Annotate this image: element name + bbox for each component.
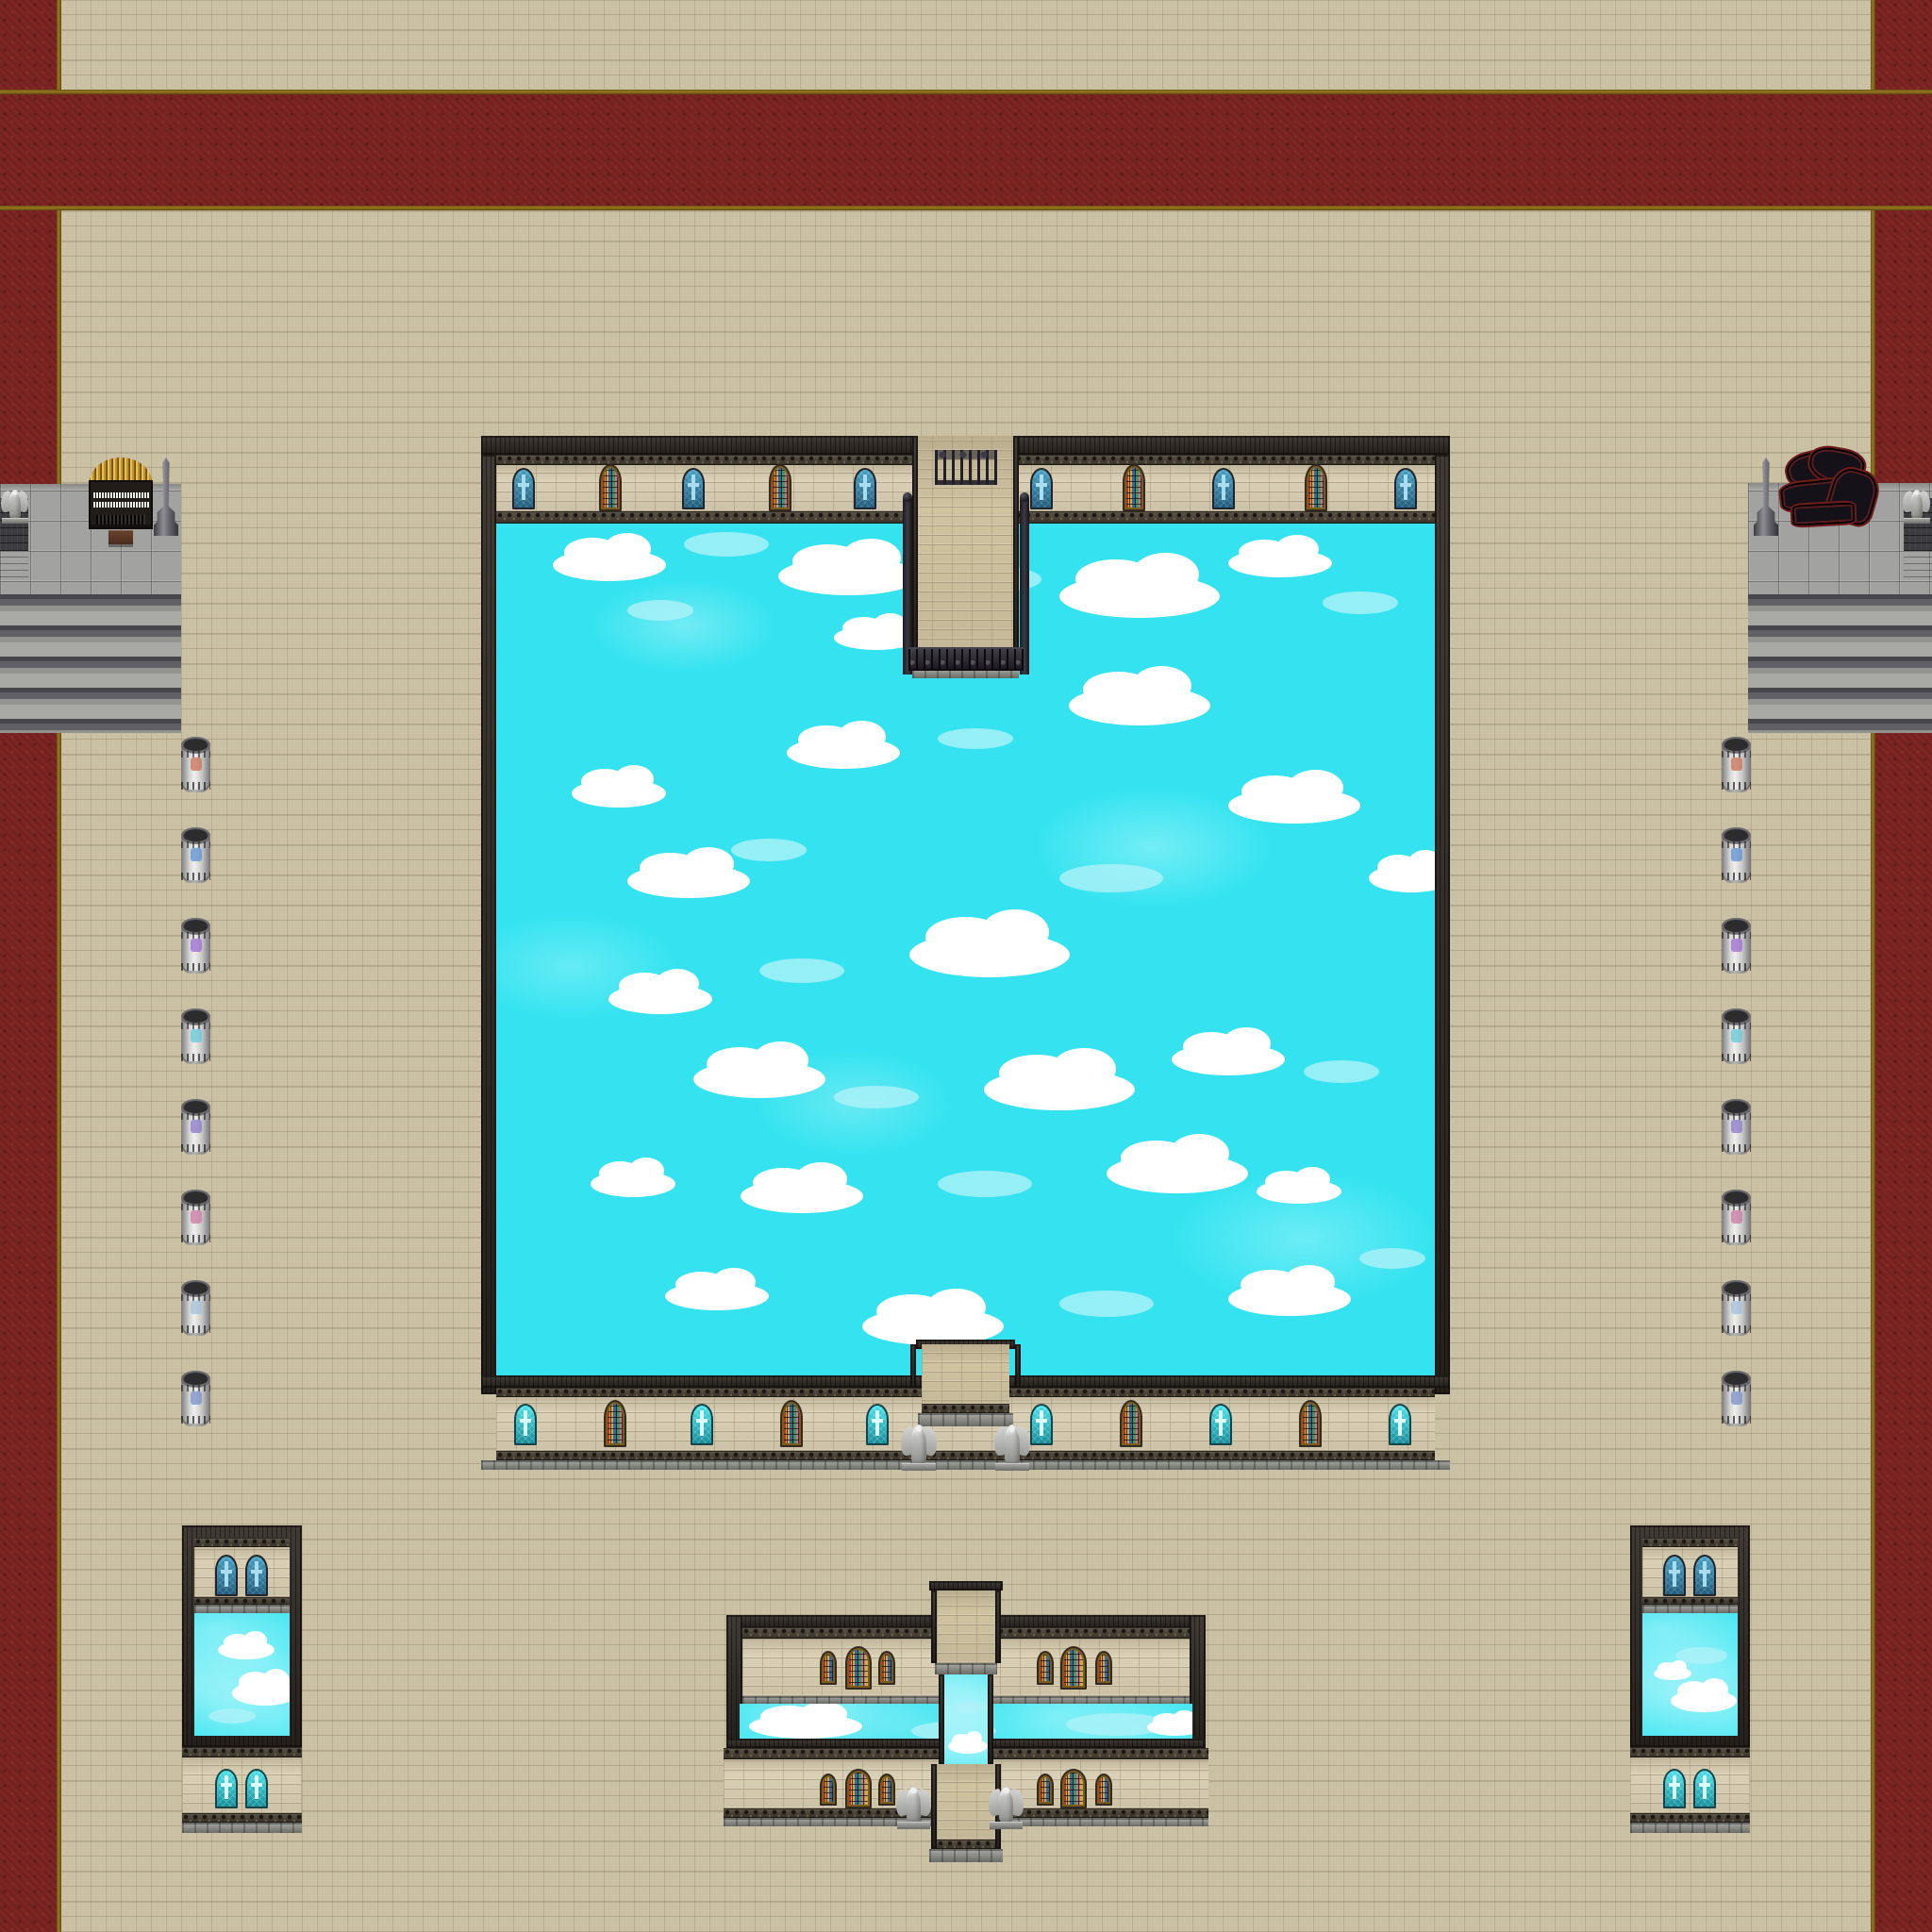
- cloud-puff: [683, 847, 735, 881]
- cloud-puff: [1170, 1134, 1229, 1174]
- cloud-wisp: [1059, 1291, 1154, 1317]
- left-chapel-cornice-top: [194, 1538, 290, 1547]
- left-chapel-cornice-mid: [194, 1597, 290, 1605]
- marble-pillar[interactable]: [181, 1373, 210, 1426]
- stained-glass-window: [1037, 1774, 1054, 1806]
- cloud-puff: [656, 969, 699, 999]
- stained-glass-window: [604, 1400, 626, 1447]
- marble-pillar[interactable]: [181, 1010, 210, 1064]
- left-chapel-south-cornice-lower: [182, 1813, 302, 1823]
- cloud-puff: [604, 533, 651, 565]
- statue-body: [1911, 490, 1923, 518]
- courtyard-south-ledge: [481, 1460, 1450, 1470]
- stained-glass-window: [1060, 1646, 1087, 1690]
- cloud-puff: [926, 1289, 986, 1326]
- angel-statue[interactable]: [996, 1421, 1028, 1470]
- pillar-emblem: [191, 1391, 202, 1405]
- cloud: [948, 1739, 988, 1754]
- left-chapel-south-wall: [182, 1757, 302, 1813]
- pillar-top-opening: [1722, 1190, 1751, 1206]
- cloud-puff: [1288, 770, 1343, 806]
- cyan-cross-window: [245, 1769, 268, 1808]
- pillar-band: [181, 1235, 210, 1242]
- ornamental-iron-gate[interactable]: [935, 450, 997, 485]
- cyan-cross-window: [1209, 1404, 1232, 1445]
- cloud: [665, 1282, 769, 1310]
- cloud-puff: [753, 1041, 808, 1079]
- pillar-emblem: [1731, 1391, 1742, 1405]
- stained-glass-window: [1095, 1774, 1112, 1806]
- pillar-emblem: [1731, 758, 1742, 771]
- blue-cross-window: [682, 468, 705, 509]
- stained-glass-window: [1060, 1769, 1087, 1808]
- cloud-wisp: [627, 600, 693, 621]
- organ-keyboard-upper: [92, 492, 149, 498]
- marble-pillar[interactable]: [181, 739, 210, 792]
- cloud-wisp: [938, 728, 1013, 749]
- pillar-top-opening: [1722, 827, 1751, 843]
- cloud: [1671, 1690, 1737, 1712]
- pillar-top-opening: [1722, 1099, 1751, 1115]
- red-carpet-left-strip: [0, 0, 57, 1932]
- cloud: [1228, 549, 1332, 577]
- pillar-emblem: [191, 1301, 202, 1314]
- statue-pedestal: [902, 1463, 935, 1471]
- pillar-band: [1722, 963, 1751, 971]
- south-notch-walkway: [922, 1344, 1009, 1410]
- angel-statue[interactable]: [991, 1783, 1022, 1828]
- cloud: [909, 932, 1070, 977]
- stained-glass-window: [1095, 1651, 1112, 1685]
- left-chapel-north-wall: [194, 1547, 290, 1597]
- right-chapel-ledge-mid: [1642, 1605, 1738, 1613]
- cloud-puff: [838, 721, 885, 753]
- cloud-puff: [1275, 535, 1319, 563]
- angel-statue[interactable]: [3, 487, 27, 523]
- marble-pillar[interactable]: [1722, 739, 1751, 792]
- pillar-emblem: [191, 758, 202, 771]
- stained-glass-window: [878, 1774, 895, 1806]
- cloud: [984, 1069, 1135, 1110]
- marble-pillar[interactable]: [1722, 1282, 1751, 1336]
- cyan-cross-window: [866, 1404, 889, 1445]
- cloud-puff: [966, 1731, 983, 1746]
- statue-pedestal: [995, 1463, 1028, 1471]
- cloud: [1107, 1154, 1248, 1193]
- pillar-top-opening: [1722, 1280, 1751, 1296]
- marble-pillar[interactable]: [1722, 1101, 1751, 1155]
- cloud-wisp: [953, 1702, 985, 1713]
- south-column-border-right: [995, 1591, 1001, 1663]
- cloud: [749, 1714, 862, 1739]
- cloud-puff: [795, 1162, 847, 1196]
- cloud: [1069, 686, 1210, 725]
- pillar-emblem: [191, 1029, 202, 1042]
- blue-cross-window: [1663, 1555, 1686, 1596]
- stained-glass-window: [769, 464, 791, 511]
- cloud-wisp: [1059, 864, 1163, 892]
- left-chapel-ledge-mid: [194, 1605, 290, 1613]
- pillar-band: [181, 873, 210, 880]
- cloud-wisp: [834, 1086, 919, 1108]
- cloud: [553, 549, 666, 581]
- pillar-top-opening: [181, 1371, 210, 1387]
- statue-body: [9, 490, 21, 518]
- pillar-band: [1722, 1144, 1751, 1152]
- blue-cross-window: [854, 468, 876, 509]
- cloud: [1059, 575, 1220, 618]
- blue-cross-window: [1394, 468, 1417, 509]
- angel-statue[interactable]: [1905, 487, 1929, 523]
- south-chapel-sky-strip: [944, 1674, 988, 1764]
- cloud: [591, 1171, 675, 1197]
- pillar-band: [181, 1054, 210, 1061]
- organ-bench[interactable]: [108, 530, 133, 544]
- cloud-puff: [712, 1268, 756, 1296]
- stained-glass-window: [820, 1774, 837, 1806]
- south-column-upper: [937, 1591, 995, 1663]
- south-column-ledge: [935, 1663, 997, 1674]
- courtyard-frame-right: [1435, 455, 1450, 1394]
- pillar-emblem: [1731, 848, 1742, 861]
- cyan-cross-window: [691, 1404, 713, 1445]
- pillar-top-opening: [181, 1099, 210, 1115]
- statue-pedestal: [2, 518, 27, 524]
- stained-glass-window: [1120, 1400, 1142, 1447]
- right-chapel-south-cornice-lower: [1630, 1813, 1750, 1823]
- marble-pillar[interactable]: [181, 829, 210, 883]
- blue-cross-window: [1030, 468, 1053, 509]
- cloud: [1228, 1282, 1351, 1316]
- cloud-puff: [614, 765, 654, 793]
- courtyard-south-cornice-lower: [496, 1451, 1435, 1460]
- cloud: [232, 1681, 290, 1706]
- cyan-cross-window: [1663, 1769, 1686, 1808]
- right-chapel-south-ledge: [1630, 1823, 1750, 1833]
- south-notch-border-left: [910, 1344, 916, 1388]
- cloud: [778, 558, 920, 595]
- cyan-cross-window: [1030, 1404, 1053, 1445]
- cloud-wisp: [938, 1171, 1032, 1197]
- pillar-top-opening: [1722, 918, 1751, 934]
- walkway-iron-railing: [908, 647, 1024, 671]
- statue-body: [911, 1424, 926, 1463]
- pillar-band: [181, 1416, 210, 1424]
- left-platform-stairs[interactable]: [0, 594, 181, 733]
- stained-glass-window: [845, 1769, 872, 1808]
- cloud-puff: [262, 1669, 290, 1693]
- stained-glass-window: [599, 464, 622, 511]
- statue-pedestal: [990, 1822, 1022, 1829]
- angel-statue[interactable]: [903, 1421, 935, 1470]
- cyan-cross-window: [514, 1404, 537, 1445]
- walkway-border-left: [912, 436, 918, 677]
- south-column-cornice: [937, 1840, 995, 1849]
- stained-glass-window: [1037, 1651, 1054, 1685]
- cloud-puff: [1671, 1660, 1687, 1674]
- right-chapel-south-cornice: [1630, 1747, 1750, 1757]
- marble-pillar[interactable]: [181, 1282, 210, 1336]
- pillar-band: [181, 782, 210, 790]
- cloud: [1147, 1719, 1192, 1736]
- pillar-band: [181, 1144, 210, 1152]
- pillar-band: [1722, 1235, 1751, 1242]
- south-column-sky-border-right: [988, 1674, 993, 1764]
- pipe-organ[interactable]: [89, 480, 153, 529]
- dark-regalia-pile[interactable]: [1777, 445, 1883, 528]
- marble-pillar[interactable]: [1722, 829, 1751, 883]
- cloud: [1172, 1043, 1285, 1075]
- pillar-band: [1722, 782, 1751, 790]
- left-chapel-south-ledge: [182, 1823, 302, 1833]
- cloud: [1369, 864, 1435, 892]
- cloud-puff: [1173, 1710, 1192, 1727]
- pillar-band: [1722, 1054, 1751, 1061]
- blue-cross-window: [1212, 468, 1235, 509]
- marble-pillar[interactable]: [1722, 1010, 1751, 1064]
- right-edge-altar-base: [1904, 551, 1932, 577]
- south-notch-border-right: [1015, 1344, 1021, 1388]
- stained-glass-window: [820, 1651, 837, 1685]
- cyan-cross-window: [1693, 1769, 1716, 1808]
- south-notch-cornice: [922, 1404, 1009, 1413]
- carpet-band-gold-trim-bottom: [0, 206, 1932, 210]
- pillar-top-opening: [181, 827, 210, 843]
- pillar-band: [181, 1325, 210, 1333]
- stained-glass-window: [780, 1400, 803, 1447]
- walkway-border-right: [1013, 436, 1019, 677]
- marble-pillar[interactable]: [181, 920, 210, 974]
- cloud-wisp: [684, 532, 769, 557]
- pillar-emblem: [191, 939, 202, 952]
- pillar-emblem: [1731, 1029, 1742, 1042]
- pillar-emblem: [1731, 1210, 1742, 1224]
- right-chapel-north-wall: [1642, 1547, 1738, 1597]
- organ-pedals: [96, 515, 145, 525]
- courtyard-frame-left: [481, 455, 496, 1394]
- pillar-top-opening: [181, 1190, 210, 1206]
- cloud: [572, 779, 666, 808]
- cloud: [1654, 1667, 1691, 1680]
- blue-cross-window: [512, 468, 535, 509]
- left-chapel-south-cornice: [182, 1747, 302, 1757]
- cloud-puff: [1223, 1027, 1270, 1059]
- cloud: [741, 1179, 863, 1213]
- pillar-emblem: [1731, 1120, 1742, 1133]
- marble-pillar[interactable]: [181, 1191, 210, 1245]
- carpet-gold-trim-left: [57, 0, 61, 1932]
- stained-glass-window: [1305, 464, 1327, 511]
- pillar-emblem: [191, 1210, 202, 1224]
- stained-glass-window: [845, 1646, 872, 1690]
- marble-pillar[interactable]: [1722, 920, 1751, 974]
- statue-pedestal: [897, 1822, 929, 1829]
- marble-pillar[interactable]: [1722, 1373, 1751, 1426]
- cloud: [1257, 1179, 1341, 1204]
- right-chapel-sky-window: [1642, 1613, 1738, 1736]
- south-column-cap: [929, 1581, 1003, 1591]
- south-column-base: [929, 1849, 1003, 1862]
- cloud-puff: [628, 1158, 664, 1184]
- pillar-emblem: [1731, 1301, 1742, 1314]
- pillar-top-opening: [181, 918, 210, 934]
- pillar-band: [181, 963, 210, 971]
- statue-body: [1005, 1424, 1020, 1463]
- cloud: [1228, 788, 1360, 824]
- cloud-wisp: [759, 958, 844, 983]
- cloud: [608, 984, 712, 1014]
- left-chapel-sky-window: [194, 1613, 290, 1736]
- pillar-emblem: [191, 848, 202, 861]
- marble-pillar[interactable]: [1722, 1191, 1751, 1245]
- cloud-puff: [841, 539, 901, 576]
- red-carpet-top-band: [0, 94, 1932, 206]
- pillar-top-opening: [181, 1008, 210, 1024]
- cloud-wisp: [1359, 1248, 1425, 1269]
- pillar-emblem: [191, 1120, 202, 1133]
- marble-pillar[interactable]: [181, 1101, 210, 1155]
- right-chapel-cornice-top: [1642, 1538, 1738, 1547]
- pillar-emblem: [1731, 939, 1742, 952]
- right-chapel-cornice-mid: [1642, 1597, 1738, 1605]
- pillar-top-opening: [1722, 1371, 1751, 1387]
- pillar-band: [1722, 873, 1751, 880]
- red-carpet-right-strip: [1875, 0, 1932, 1932]
- left-edge-altar-base: [0, 551, 28, 577]
- statue-body: [907, 1787, 922, 1822]
- cloud-puff: [243, 1631, 267, 1650]
- cloud-puff: [1701, 1678, 1728, 1701]
- cloud: [787, 737, 900, 769]
- cloud-wisp: [208, 1708, 256, 1724]
- blue-cross-window: [245, 1555, 268, 1596]
- pillar-band: [1722, 1416, 1751, 1424]
- statue-body: [999, 1787, 1014, 1822]
- right-platform-stairs[interactable]: [1748, 594, 1932, 733]
- angel-statue[interactable]: [898, 1783, 929, 1828]
- pillar-top-opening: [181, 737, 210, 753]
- regalia-base: [1790, 500, 1857, 528]
- cloud-puff: [1132, 553, 1199, 596]
- pillar-top-opening: [1722, 1008, 1751, 1024]
- organ-keyboard-lower: [92, 502, 149, 508]
- cloud-puff: [1284, 1265, 1336, 1299]
- pillar-top-opening: [1722, 737, 1751, 753]
- cloud: [627, 864, 750, 898]
- stained-glass-window: [878, 1651, 895, 1685]
- pillar-band: [1722, 1325, 1751, 1333]
- cyan-cross-window: [215, 1769, 238, 1808]
- cloud-puff: [1132, 666, 1191, 706]
- cloud-wisp: [1304, 1060, 1379, 1083]
- statue-pedestal: [1904, 518, 1929, 524]
- pillar-top-opening: [181, 1280, 210, 1296]
- cloud-puff: [981, 909, 1048, 955]
- stained-glass-window: [1123, 464, 1145, 511]
- cloud-puff: [1052, 1048, 1115, 1090]
- south-column-lower: [937, 1764, 995, 1840]
- right-chapel-south-wall: [1630, 1757, 1750, 1813]
- cyan-cross-window: [1389, 1404, 1411, 1445]
- blue-cross-window: [215, 1555, 238, 1596]
- cloud-puff: [1294, 1167, 1330, 1191]
- game-map: [0, 0, 1932, 1932]
- cloud-wisp: [1323, 591, 1398, 614]
- cloud: [218, 1641, 275, 1659]
- blue-cross-window: [1693, 1555, 1716, 1596]
- cloud: [693, 1060, 825, 1098]
- stained-glass-window: [1299, 1400, 1322, 1447]
- cloud-wisp: [731, 839, 807, 861]
